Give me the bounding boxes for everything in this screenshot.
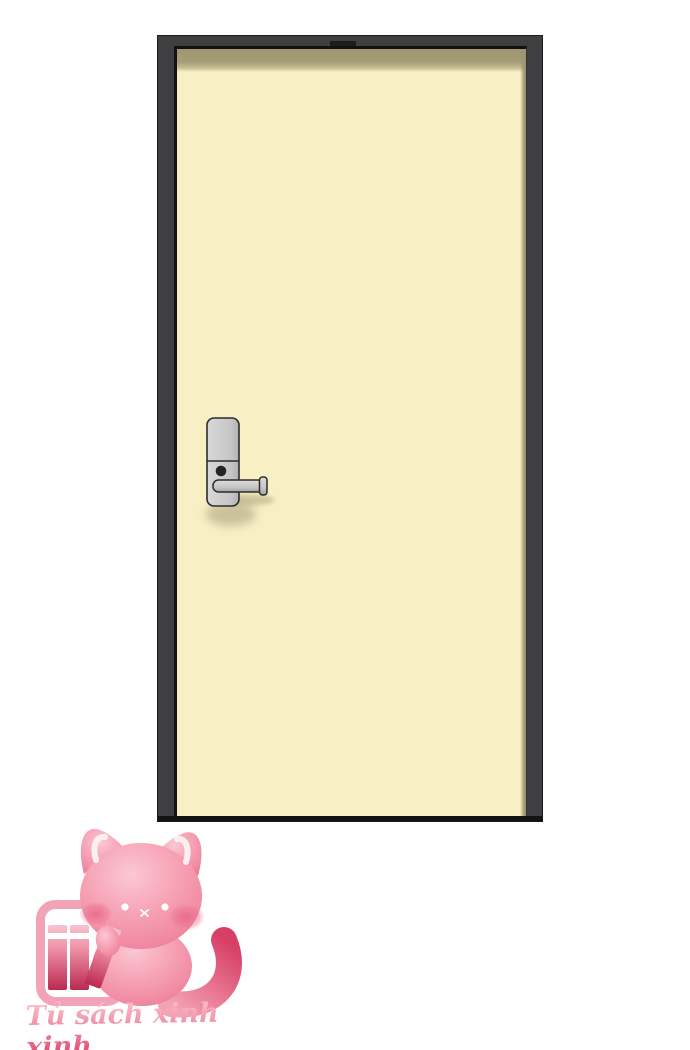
lock-body	[207, 418, 239, 506]
cat-blush-left	[79, 901, 113, 927]
book-spine-1	[48, 925, 67, 990]
comic-page: Tủ sách xinh xinh	[0, 0, 690, 1050]
door-right-shadow	[520, 49, 526, 816]
door-panel	[174, 46, 527, 816]
cat-eye-left	[121, 903, 128, 910]
cat-blush-right	[167, 903, 205, 931]
handle-end-cap	[260, 477, 268, 495]
door-top-shadow	[177, 49, 526, 72]
mascot-logo	[26, 818, 240, 1016]
cat-eye-right	[161, 903, 168, 910]
lock-keyhole	[216, 466, 227, 477]
door-frame	[157, 35, 543, 822]
door-lock	[200, 408, 300, 543]
scanlation-watermark: Tủ sách xinh xinh	[0, 815, 300, 1050]
watermark-text: Tủ sách xinh xinh	[25, 997, 256, 1050]
lever-handle	[213, 480, 264, 492]
